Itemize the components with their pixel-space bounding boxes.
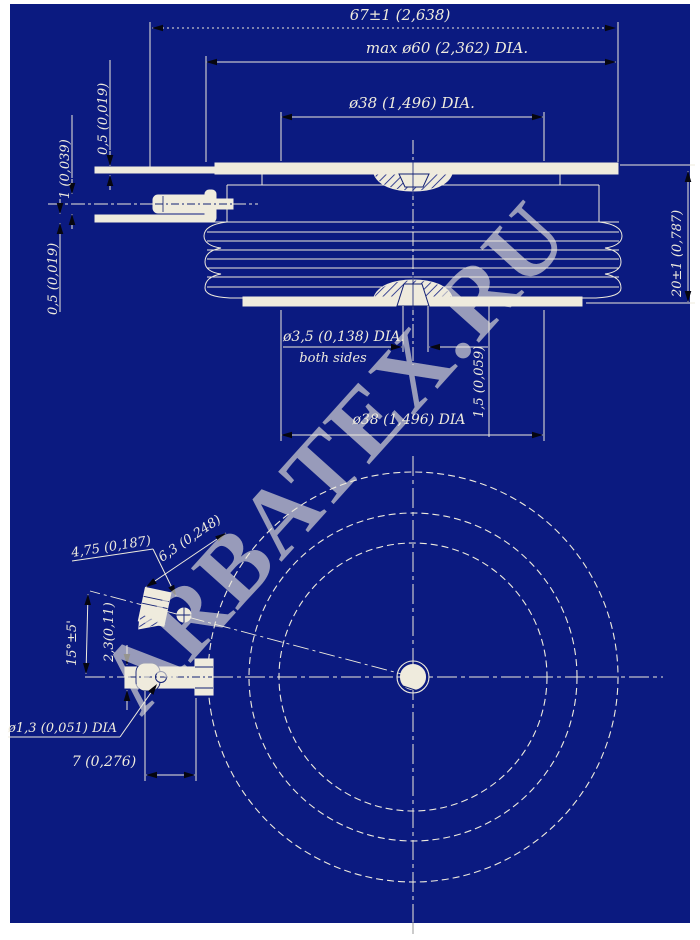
dim-max-diameter-label: max ø60 (2,362) DIA.	[366, 39, 528, 57]
dim-height-label: 20±1 (0,787)	[670, 210, 685, 298]
dim-lug-length-label: 7 (0,276)	[72, 754, 136, 770]
bottom-lead	[95, 215, 209, 222]
dim-gate-hole-label: ø1,3 (0,051) DIA	[7, 721, 117, 736]
dim-pole-top-label: ø38 (1,496) DIA.	[348, 94, 475, 112]
technical-drawing: 67±1 (2,638) max ø60 (2,362) DIA. ø38 (1…	[0, 0, 700, 940]
center-hole-inner	[401, 665, 426, 690]
top-lead	[95, 167, 215, 173]
dim-lead-bottom-label: 0,5 (0,019)	[46, 243, 61, 315]
dim-gate-thickness-label: 1 (0,039)	[58, 139, 73, 199]
dim-lead-top-label: 0,5 (0,019)	[96, 83, 111, 155]
dim-total-width-label: 67±1 (2,638)	[350, 6, 451, 24]
drawing-page: 67±1 (2,638) max ø60 (2,362) DIA. ø38 (1…	[0, 0, 700, 940]
top-pole-disc	[215, 163, 618, 174]
